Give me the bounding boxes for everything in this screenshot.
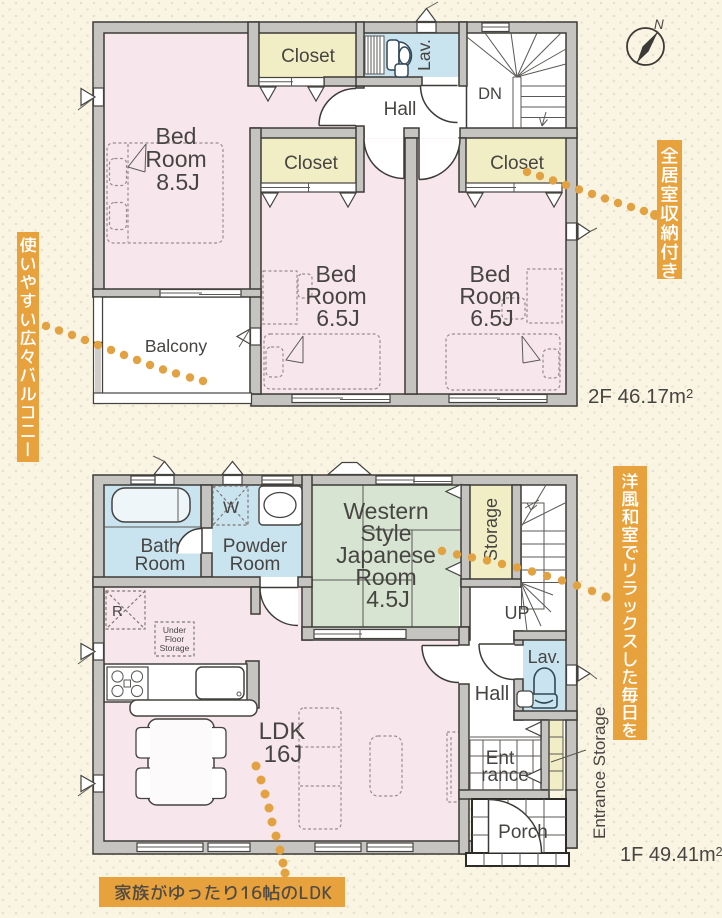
svg-text:Storage: Storage: [160, 643, 190, 653]
svg-text:rance: rance: [481, 765, 529, 786]
svg-text:Hall: Hall: [475, 683, 509, 705]
svg-text:Storage: Storage: [481, 498, 501, 561]
svg-text:N: N: [654, 17, 664, 32]
svg-text:Balcony: Balcony: [145, 336, 208, 356]
svg-text:Porch: Porch: [498, 822, 548, 843]
svg-text:6.5J: 6.5J: [316, 305, 359, 331]
svg-text:16J: 16J: [264, 741, 303, 768]
svg-text:Lav.: Lav.: [528, 647, 561, 667]
svg-text:Closet: Closet: [284, 153, 339, 174]
svg-text:6.5J: 6.5J: [470, 305, 513, 331]
svg-text:1F 49.41m2: 1F 49.41m2: [620, 844, 722, 866]
svg-text:Entrance Storage: Entrance Storage: [590, 707, 609, 839]
svg-text:R: R: [112, 603, 123, 620]
svg-text:Room: Room: [230, 554, 281, 575]
svg-text:8.5J: 8.5J: [156, 169, 199, 195]
svg-text:4.5J: 4.5J: [366, 586, 409, 612]
svg-text:2F 46.17m2: 2F 46.17m2: [588, 385, 693, 408]
svg-text:UP: UP: [504, 603, 529, 623]
svg-text:Closet: Closet: [281, 46, 336, 67]
svg-text:Hall: Hall: [384, 99, 417, 120]
svg-text:Room: Room: [135, 554, 186, 575]
svg-text:Lav.: Lav.: [414, 39, 434, 71]
svg-text:Closet: Closet: [490, 153, 545, 174]
svg-text:W: W: [223, 498, 239, 517]
svg-text:DN: DN: [478, 85, 502, 103]
